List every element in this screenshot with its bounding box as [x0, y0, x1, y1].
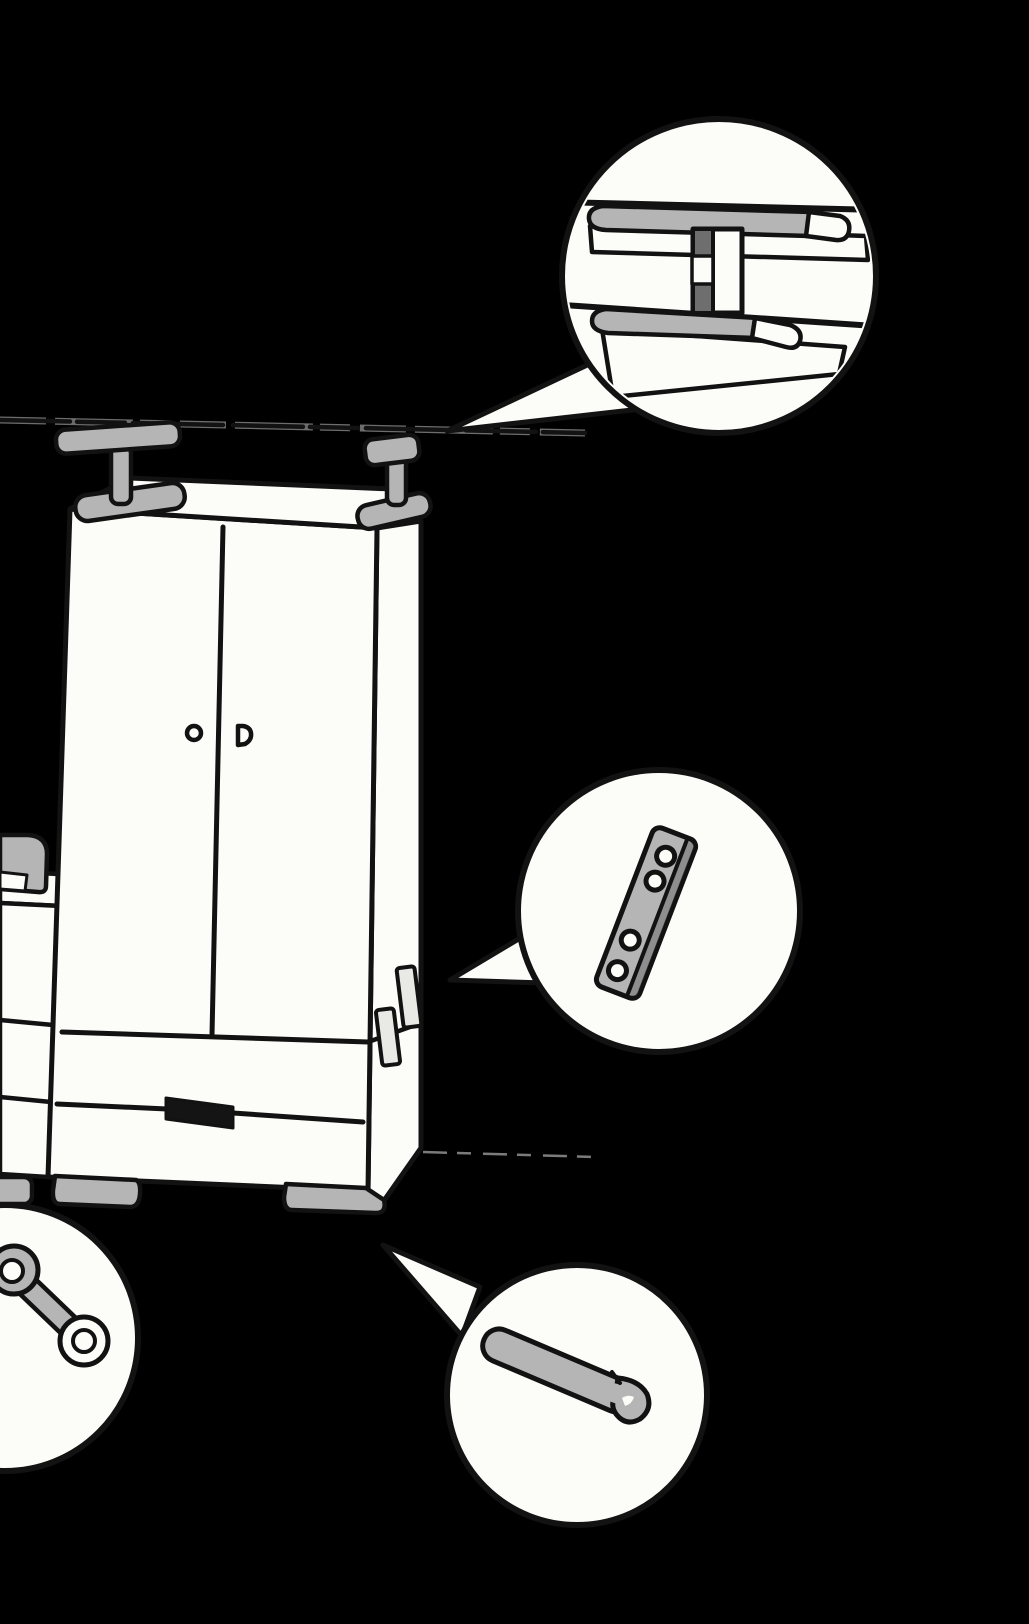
upper-board-end-lip: [806, 212, 849, 240]
bracket-right-top-shape: [364, 434, 421, 466]
bracket-left-post: [111, 446, 131, 504]
connector-pin-collar: [692, 256, 713, 284]
wardrobe-front-face: [48, 509, 377, 1191]
door-knob-left: [187, 726, 201, 740]
wardrobe: [48, 422, 433, 1213]
neighbor-foot: [0, 1177, 32, 1204]
spanner-ring-upper-hole: [1, 1260, 23, 1282]
door-knob-right: [238, 726, 251, 745]
illustration-stage: [0, 0, 1029, 1624]
assembly-illustration: [0, 0, 1029, 1624]
foot-left: [53, 1176, 140, 1207]
neighbor-bracket-base: [0, 872, 27, 891]
wardrobe-body: [48, 478, 421, 1202]
spanner-ring-lower-hole: [73, 1330, 95, 1352]
bracket-right-top: [364, 434, 421, 466]
foot-right: [284, 1184, 385, 1213]
